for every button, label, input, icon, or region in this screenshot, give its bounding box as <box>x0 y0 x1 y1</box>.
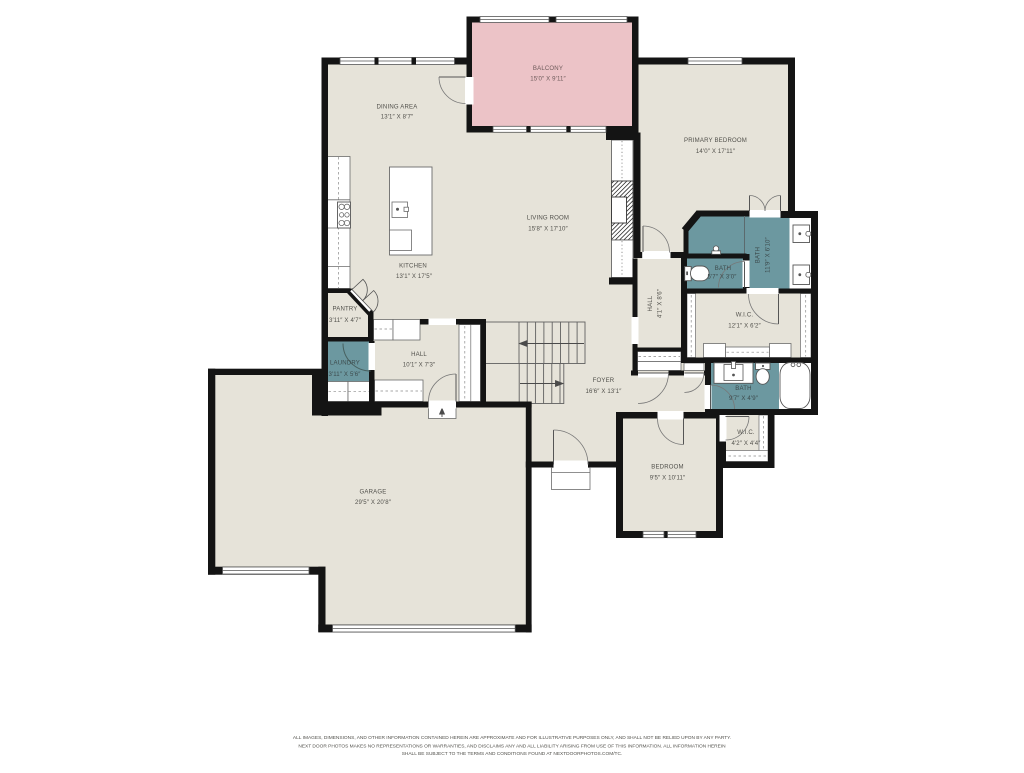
svg-text:13′1″ X 8′7″: 13′1″ X 8′7″ <box>381 115 414 121</box>
svg-text:PANTRY: PANTRY <box>332 307 357 313</box>
svg-text:15′8″ X 17′10″: 15′8″ X 17′10″ <box>528 227 568 233</box>
svg-text:12′1″ X 6′2″: 12′1″ X 6′2″ <box>728 324 761 330</box>
svg-text:9′5″ X 10′11″: 9′5″ X 10′11″ <box>650 476 686 482</box>
svg-text:HALL: HALL <box>411 352 427 358</box>
svg-text:9′7″ X 4′9″: 9′7″ X 4′9″ <box>729 396 759 402</box>
svg-text:KITCHEN: KITCHEN <box>399 264 427 270</box>
svg-text:DINING AREA: DINING AREA <box>377 105 419 111</box>
svg-text:GARAGE: GARAGE <box>360 490 387 496</box>
svg-text:3′11″ X 5′6″: 3′11″ X 5′6″ <box>328 372 361 378</box>
svg-text:10′1″ X 7′3″: 10′1″ X 7′3″ <box>403 363 436 369</box>
svg-text:29′5″ X 20′8″: 29′5″ X 20′8″ <box>355 500 392 506</box>
svg-text:HALL: HALL <box>648 295 654 311</box>
svg-text:4′2″ X 4′4″: 4′2″ X 4′4″ <box>731 441 761 447</box>
svg-text:BATH: BATH <box>756 247 762 263</box>
svg-text:4′1″ X 8′6″: 4′1″ X 8′6″ <box>658 288 664 318</box>
svg-text:W.I.C.: W.I.C. <box>737 430 755 436</box>
svg-text:NEXT DOOR PHOTOS MAKES NO REPR: NEXT DOOR PHOTOS MAKES NO REPRESENTATION… <box>298 743 726 749</box>
svg-text:W.I.C.: W.I.C. <box>736 313 754 319</box>
svg-text:FOYER: FOYER <box>593 378 615 384</box>
svg-text:BATH: BATH <box>715 266 731 272</box>
svg-text:15′0″ X 9′11″: 15′0″ X 9′11″ <box>530 77 566 83</box>
svg-text:LAUNDRY: LAUNDRY <box>330 361 360 367</box>
svg-text:5′7″ X 3′0″: 5′7″ X 3′0″ <box>707 274 737 280</box>
svg-text:BALCONY: BALCONY <box>533 66 563 72</box>
svg-text:13′1″ X 17′5″: 13′1″ X 17′5″ <box>396 274 433 280</box>
svg-text:ALL IMAGES, DIMENSIONS, AND OT: ALL IMAGES, DIMENSIONS, AND OTHER INFORM… <box>293 735 731 741</box>
svg-text:11′9″ X 6′10″: 11′9″ X 6′10″ <box>766 236 772 272</box>
svg-text:PRIMARY BEDROOM: PRIMARY BEDROOM <box>684 138 747 144</box>
svg-text:16′6″ X 13′1″: 16′6″ X 13′1″ <box>585 389 622 395</box>
svg-text:BEDROOM: BEDROOM <box>651 465 684 471</box>
svg-text:BATH: BATH <box>735 386 751 392</box>
svg-text:SHALL BE SUBJECT TO THE TERMS: SHALL BE SUBJECT TO THE TERMS AND CONDIT… <box>402 751 623 757</box>
svg-text:3′11″ X 4′7″: 3′11″ X 4′7″ <box>329 318 362 324</box>
svg-text:14′0″ X 17′11″: 14′0″ X 17′11″ <box>696 149 736 155</box>
svg-text:LIVING ROOM: LIVING ROOM <box>527 216 569 222</box>
